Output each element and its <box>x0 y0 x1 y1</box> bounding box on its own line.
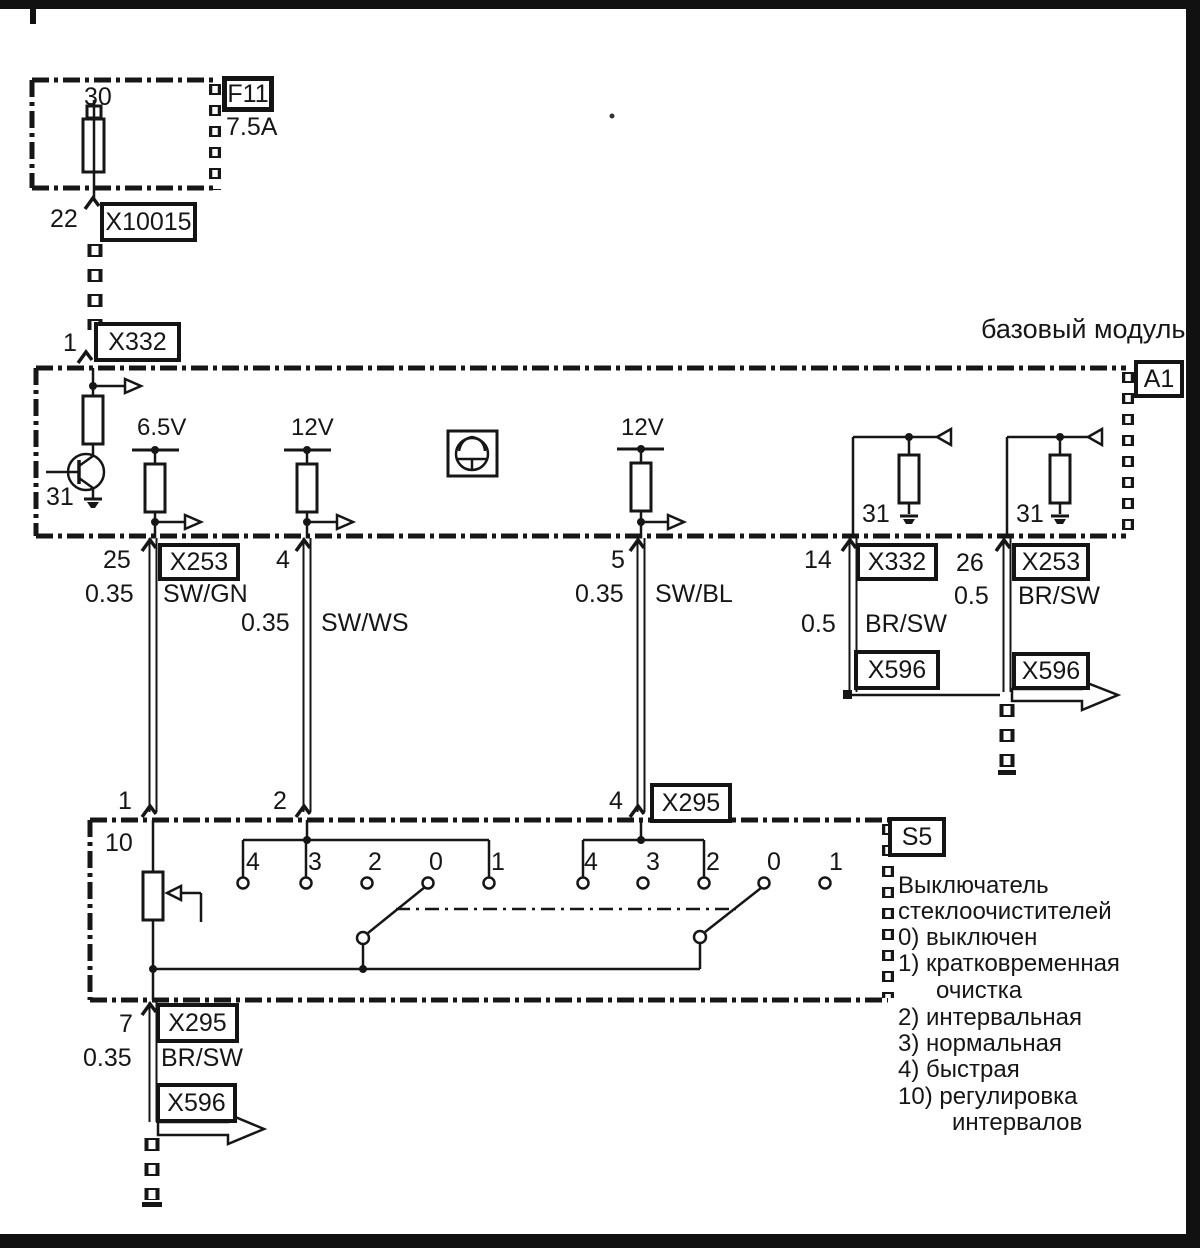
terminal-31-right-label: 31 <box>1016 501 1044 527</box>
wire-offpage-bottom <box>142 1138 162 1207</box>
connector-x596-bottom-label: X596 <box>167 1089 225 1118</box>
g1-contact-1-label: 1 <box>491 849 505 875</box>
switch-lever-2 <box>705 888 761 932</box>
connector-x332-mid-label: X332 <box>868 548 926 577</box>
pin-25-label: 25 <box>103 547 131 573</box>
connector-x596-bottom-box: X596 <box>156 1083 237 1123</box>
legend-line-3: 0) выключен <box>898 925 1037 950</box>
legend-line-9: 10) регулировка <box>898 1084 1078 1109</box>
legend-line-4: 1) кратковременная <box>898 951 1120 976</box>
legend-line-6: 2) интервальная <box>898 1005 1082 1030</box>
terminal-31-mid-label: 31 <box>862 501 890 527</box>
terminal-31-left-label: 31 <box>46 484 74 510</box>
legend-line-8: 4) быстрая <box>898 1057 1020 1082</box>
fuse-id-box: F11 <box>222 76 274 112</box>
module-a1-id-box: A1 <box>1134 360 1184 398</box>
connector-x10015-label: X10015 <box>105 208 191 237</box>
connector-x295-top-label: X295 <box>662 789 720 818</box>
connector-x253-left-label: X253 <box>170 548 228 577</box>
pin-4-label: 4 <box>276 547 290 573</box>
rail-12v-1-label: 12V <box>291 415 334 440</box>
rail-12v-2 <box>617 445 684 538</box>
fuse-symbol <box>83 100 104 200</box>
connector-x596-right-box: X596 <box>1012 652 1090 690</box>
contact-g1-3 <box>301 878 312 889</box>
contact-g1-4 <box>238 878 249 889</box>
contact-g2-2 <box>699 878 710 889</box>
switch-s5-internals <box>143 820 831 1000</box>
electronic-module-icon <box>448 431 497 476</box>
wire-7-gauge: 0.35 <box>83 1045 132 1071</box>
wire-14-gauge: 0.5 <box>801 611 836 637</box>
potentiometer-wiper-arrow <box>167 886 181 900</box>
module-a1-id-label: A1 <box>1144 365 1175 394</box>
g2-contact-3-label: 3 <box>646 849 660 875</box>
connector-x332-top-label: X332 <box>108 328 166 357</box>
wire-5-gauge: 0.35 <box>575 581 624 607</box>
g2-contact-4-label: 4 <box>584 849 598 875</box>
legend-line-10: интервалов <box>952 1110 1082 1135</box>
g1-contact-2-label: 2 <box>368 849 382 875</box>
terminal-30-label: 30 <box>84 84 112 110</box>
g1-contact-0-label: 0 <box>429 849 443 875</box>
wire-4-color: SW/WS <box>321 610 409 636</box>
module-title: базовый модуль <box>981 315 1185 343</box>
rail-12v-2-label: 12V <box>621 415 664 440</box>
wire-26-gauge: 0.5 <box>954 583 989 609</box>
g2-contact-0-label: 0 <box>767 849 781 875</box>
wire-25-color: SW/GN <box>163 581 248 607</box>
wiring-diagram-page: F11 X10015 X332 A1 X253 X332 X253 X596 X… <box>0 0 1200 1248</box>
s5-pin-1-label: 1 <box>118 788 132 814</box>
g2-contact-1-label: 1 <box>829 849 843 875</box>
legend-line-7: 3) нормальная <box>898 1031 1062 1056</box>
switch-s5-id-label: S5 <box>902 823 933 852</box>
rail-6-5v-label: 6.5V <box>137 415 186 440</box>
connector-x295-bottom-box: X295 <box>156 1003 239 1043</box>
connector-x596-right-label: X596 <box>1022 657 1080 686</box>
s5-pin-4-label: 4 <box>609 788 623 814</box>
contact-g2-4 <box>578 878 589 889</box>
pin-7-label: 7 <box>119 1011 133 1037</box>
connector-x253-right-box: X253 <box>1012 543 1090 581</box>
legend-line-2: стеклоочистителей <box>898 899 1112 924</box>
pin-22-label: 22 <box>50 206 78 232</box>
pin-26-label: 26 <box>956 550 984 576</box>
s5-pin-10-label: 10 <box>105 830 133 856</box>
connector-x332-top-box: X332 <box>94 322 181 362</box>
rail-12v-1 <box>284 446 353 538</box>
connector-x596-left-label: X596 <box>868 656 926 685</box>
connector-x332-mid-box: X332 <box>856 543 938 581</box>
s5-pin-2-label: 2 <box>273 788 287 814</box>
contact-g2-1 <box>820 878 831 889</box>
wire-4-gauge: 0.35 <box>241 610 290 636</box>
legend-line-5: очистка <box>936 978 1022 1003</box>
connector-x253-right-label: X253 <box>1022 548 1080 577</box>
module-a1-outline <box>36 368 1128 536</box>
pin-1-label: 1 <box>63 330 77 356</box>
contact-g2-3 <box>638 878 649 889</box>
connector-x253-left-box: X253 <box>158 543 240 581</box>
fuse-box-outline <box>32 80 215 190</box>
switch-s5-id-box: S5 <box>888 817 946 857</box>
fuse-rating-label: 7.5A <box>226 114 277 140</box>
g2-contact-2-label: 2 <box>706 849 720 875</box>
fuse-id-label: F11 <box>227 80 268 109</box>
g1-contact-4-label: 4 <box>246 849 260 875</box>
pin-14-label: 14 <box>804 547 832 573</box>
contact-g2-0 <box>759 878 770 889</box>
wire-7-color: BR/SW <box>161 1045 243 1071</box>
connector-x10015-box: X10015 <box>100 202 197 242</box>
g1-contact-3-label: 3 <box>308 849 322 875</box>
connector-x596-left-box: X596 <box>854 650 940 690</box>
rail-6-5v <box>132 446 201 538</box>
wire-5-color: SW/BL <box>655 581 733 607</box>
wire-offpage-right <box>998 704 1016 775</box>
wire-26-color: BR/SW <box>1018 583 1100 609</box>
contact-g1-2 <box>362 878 373 889</box>
contact-g1-1 <box>484 878 495 889</box>
legend-line-1: Выключатель <box>898 873 1049 898</box>
connector-x295-bottom-label: X295 <box>168 1009 226 1038</box>
wire-25-gauge: 0.35 <box>85 581 134 607</box>
pin-5-label: 5 <box>611 547 625 573</box>
wire-14-color: BR/SW <box>865 611 947 637</box>
connector-x295-top-box: X295 <box>650 783 732 823</box>
